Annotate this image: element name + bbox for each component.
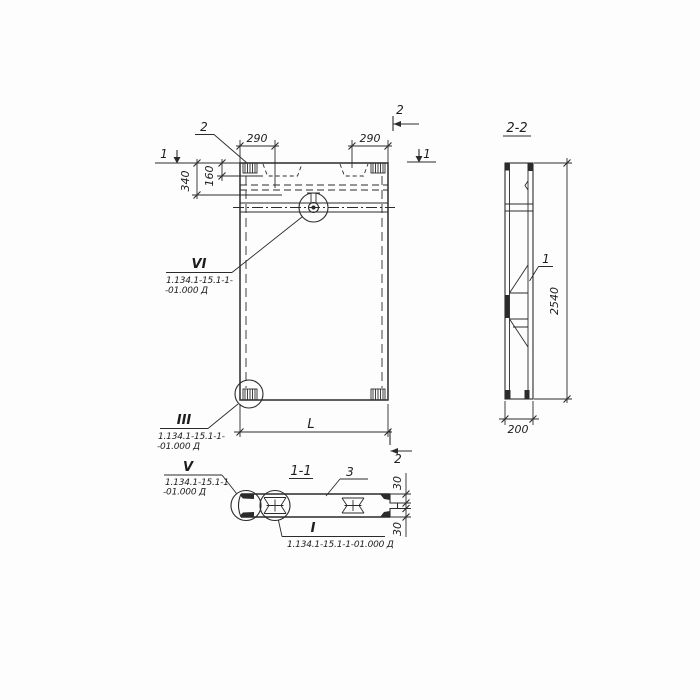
- svg-text:1-1: 1-1: [290, 464, 311, 479]
- keyway-middle: [342, 498, 364, 513]
- svg-text:2540: 2540: [548, 287, 561, 315]
- side-embed-bottom-right: [525, 390, 530, 399]
- dim-30-steps: 30 30: [390, 473, 411, 537]
- svg-text:1.134.1-15.1-1-: 1.134.1-15.1-1-: [166, 276, 233, 286]
- corner-detail-circle: [235, 380, 263, 408]
- drawing-sheet: 290 290 160 340 L: [0, 0, 700, 700]
- embed-bottom-right: [371, 389, 385, 400]
- strip-right-end: [390, 494, 398, 517]
- svg-text:290: 290: [360, 132, 381, 145]
- strip-embed-tl: [241, 494, 254, 499]
- recess-top-left: [263, 164, 302, 176]
- svg-text:-01.000 Д: -01.000 Д: [165, 286, 208, 296]
- side-inner-lines: [510, 163, 529, 399]
- strip-edges: [241, 494, 390, 517]
- svg-text:V: V: [183, 460, 194, 475]
- section-mark-1-right: 1: [407, 147, 436, 163]
- keyway-left: [264, 498, 286, 514]
- svg-text:1.134.1-15.1-1: 1.134.1-15.1-1: [165, 478, 229, 488]
- technical-drawing: 290 290 160 340 L: [0, 0, 700, 700]
- svg-text:2-2: 2-2: [506, 121, 527, 136]
- detail-callout-vi: VI 1.134.1-15.1-1- -01.000 Д: [165, 217, 302, 296]
- svg-text:30: 30: [391, 522, 404, 536]
- embed-bottom-left: [243, 389, 257, 400]
- section-mark-1-left: 1: [160, 147, 180, 164]
- svg-text:2: 2: [200, 120, 208, 134]
- svg-text:200: 200: [508, 423, 529, 436]
- section-mark-2-top: 2: [393, 103, 419, 131]
- detail-callout-i: I 1.134.1-15.1-1-01.000 Д: [279, 521, 394, 551]
- svg-text:I: I: [311, 521, 316, 536]
- side-embed-top-right: [528, 164, 533, 172]
- svg-text:2: 2: [394, 452, 402, 466]
- svg-text:3: 3: [346, 465, 354, 479]
- svg-text:2: 2: [396, 103, 404, 117]
- svg-text:1.134.1-15.1-1-01.000 Д: 1.134.1-15.1-1-01.000 Д: [287, 540, 394, 550]
- svg-text:-01.000 Д: -01.000 Д: [157, 442, 200, 452]
- section-2-2: 2-2 1 2540 200: [499, 121, 572, 436]
- side-embed-top-left: [506, 164, 510, 171]
- svg-text:1: 1: [423, 147, 431, 161]
- svg-text:L: L: [307, 417, 314, 432]
- strip-embed-bl: [241, 512, 254, 517]
- callout-3: 3: [326, 465, 368, 496]
- strip-left-end: [239, 494, 242, 517]
- side-rib: [506, 265, 529, 347]
- detail-callout-v: V 1.134.1-15.1-1 -01.000 Д: [163, 460, 237, 498]
- embed-top-right: [371, 163, 385, 173]
- dim-200: 200: [499, 401, 539, 436]
- embed-top-left: [243, 163, 257, 173]
- front-view: 290 290 160 340 L: [155, 103, 436, 466]
- svg-text:III: III: [177, 413, 192, 428]
- svg-text:1: 1: [542, 252, 550, 266]
- svg-text:340: 340: [179, 171, 192, 192]
- svg-text:VI: VI: [192, 257, 207, 272]
- side-embed-bottom-left: [506, 390, 511, 399]
- hidden-band-lines: [240, 185, 388, 190]
- detail-callout-iii: III 1.134.1-15.1-1- -01.000 Д: [157, 404, 238, 452]
- dim-2540: 2540: [534, 158, 572, 403]
- svg-text:1.134.1-15.1-1-: 1.134.1-15.1-1-: [158, 432, 225, 442]
- svg-text:290: 290: [247, 132, 268, 145]
- embed-leader-2: 2: [195, 120, 247, 163]
- strip-embed-tr: [380, 494, 390, 500]
- svg-text:30: 30: [391, 476, 404, 490]
- panel-outline: [240, 163, 388, 400]
- svg-text:-01.000 Д: -01.000 Д: [163, 488, 206, 498]
- section-mark-2-bottom: 2: [390, 429, 412, 466]
- section-1-1: 1-1 30 30: [163, 460, 411, 550]
- strip-embed-br: [380, 511, 390, 517]
- recess-top-right: [340, 164, 368, 176]
- section-1-1-title: 1-1: [289, 464, 313, 479]
- svg-text:160: 160: [203, 166, 216, 187]
- dim-290-left: 290: [236, 132, 279, 188]
- svg-text:1: 1: [160, 147, 168, 161]
- section-2-2-title: 2-2: [503, 121, 531, 136]
- dim-length-L: L: [234, 404, 392, 437]
